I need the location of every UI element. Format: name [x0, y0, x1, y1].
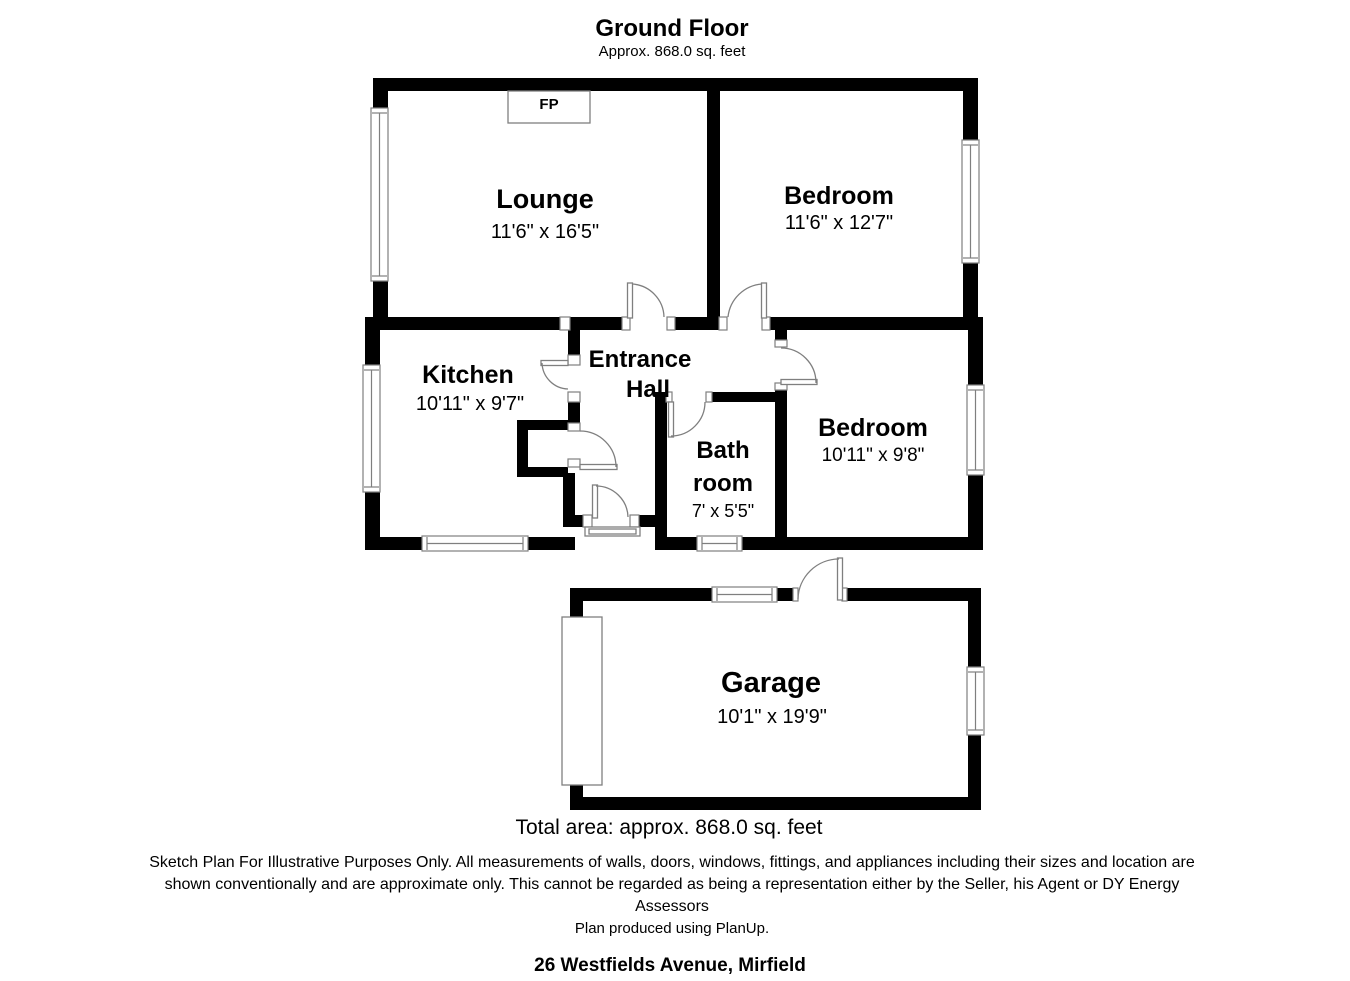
window-bathroom-bottom: [697, 536, 742, 551]
wall: [968, 601, 981, 667]
door-hall-cupboard: [580, 431, 617, 470]
wall: [963, 91, 978, 140]
wall: [517, 467, 568, 477]
room-label-bathroom-line2: room: [693, 471, 753, 497]
page-title: Ground Floor: [595, 16, 748, 42]
room-label-entrance-hall-line1: Entrance: [589, 347, 692, 373]
door-jamb: [706, 392, 712, 402]
window-garage-right: [967, 667, 984, 735]
room-label-bedroom1: Bedroom: [784, 183, 894, 211]
wall: [968, 317, 983, 385]
wall: [968, 475, 983, 550]
total-area-text: Total area: approx. 868.0 sq. feet: [515, 816, 822, 839]
door-front-entrance: [593, 485, 629, 518]
door-bathroom: [669, 402, 706, 437]
produced-by-text: Plan produced using PlanUp.: [575, 921, 769, 938]
wall: [528, 537, 575, 550]
door-jamb: [622, 317, 630, 330]
wall: [963, 263, 978, 317]
door-kitchen: [541, 361, 568, 390]
wall: [655, 537, 697, 550]
window-lounge-left: [371, 108, 388, 281]
door-bedroom1: [728, 283, 767, 318]
window-kitchen-bottom: [422, 536, 528, 551]
wall: [770, 317, 978, 330]
door-jamb: [560, 317, 570, 330]
door-jamb: [667, 317, 675, 330]
door-jamb: [630, 515, 639, 527]
door-jamb: [762, 317, 770, 330]
floorplan-page: Ground Floor Approx. 868.0 sq. feet FP L…: [0, 0, 1350, 981]
room-dims-bedroom2: 10'11" x 9'8": [822, 446, 925, 467]
wall: [787, 537, 983, 550]
wall: [563, 515, 583, 527]
door-jamb: [568, 392, 580, 402]
wall: [365, 537, 422, 550]
room-dims-kitchen: 10'11" x 9'7": [416, 393, 524, 415]
wall: [365, 317, 380, 365]
wall: [775, 390, 787, 550]
door-bedroom2: [781, 348, 817, 385]
wall: [847, 588, 981, 601]
door-jamb: [719, 317, 727, 330]
disclaimer-line-3: Assessors: [635, 898, 709, 916]
room-dims-garage: 10'1" x 19'9": [717, 706, 827, 728]
room-label-kitchen: Kitchen: [422, 362, 514, 390]
wall: [570, 317, 622, 330]
door-garage-side: [798, 558, 843, 600]
doors: [541, 283, 843, 600]
disclaimer-line-2: shown conventionally and are approximate…: [165, 876, 1180, 894]
wall: [675, 317, 719, 330]
wall: [365, 317, 560, 330]
wall: [570, 588, 712, 601]
room-label-garage: Garage: [721, 668, 821, 700]
front-door-threshold: [585, 527, 640, 536]
garage-vehicle-door: [562, 617, 602, 785]
room-dims-lounge: 11'6" x 16'5": [491, 221, 599, 243]
wall: [568, 330, 580, 355]
fireplace-label: FP: [539, 97, 558, 114]
door-jamb: [568, 423, 580, 431]
window-bedroom2-right: [967, 385, 984, 475]
property-address: 26 Westfields Avenue, Mirfield: [534, 956, 806, 977]
window-kitchen-left: [363, 365, 380, 492]
wall: [968, 735, 981, 810]
wall: [373, 78, 978, 91]
room-label-lounge: Lounge: [496, 185, 593, 215]
wall: [775, 330, 787, 340]
wall: [570, 797, 981, 810]
disclaimer-line-1: Sketch Plan For Illustrative Purposes On…: [149, 854, 1195, 872]
wall: [777, 588, 793, 601]
door-jamb: [583, 515, 592, 527]
room-label-entrance-hall-line2: Hall: [626, 377, 670, 403]
door-jamb: [568, 355, 580, 365]
room-label-bedroom2: Bedroom: [818, 415, 928, 443]
window-garage-top: [712, 587, 777, 602]
room-label-bathroom-line1: Bath: [696, 438, 749, 464]
wall: [707, 91, 720, 317]
wall: [570, 601, 583, 617]
page-subtitle: Approx. 868.0 sq. feet: [599, 44, 746, 61]
door-jamb: [568, 459, 580, 467]
door-jamb: [775, 340, 787, 347]
room-dims-bedroom1: 11'6" x 12'7": [785, 212, 893, 234]
door-jamb: [793, 588, 798, 601]
door-lounge: [628, 283, 665, 318]
window-bedroom1-right: [962, 140, 979, 263]
room-dims-bathroom: 7' x 5'5": [692, 502, 754, 522]
wall: [568, 402, 580, 423]
wall: [655, 392, 667, 550]
